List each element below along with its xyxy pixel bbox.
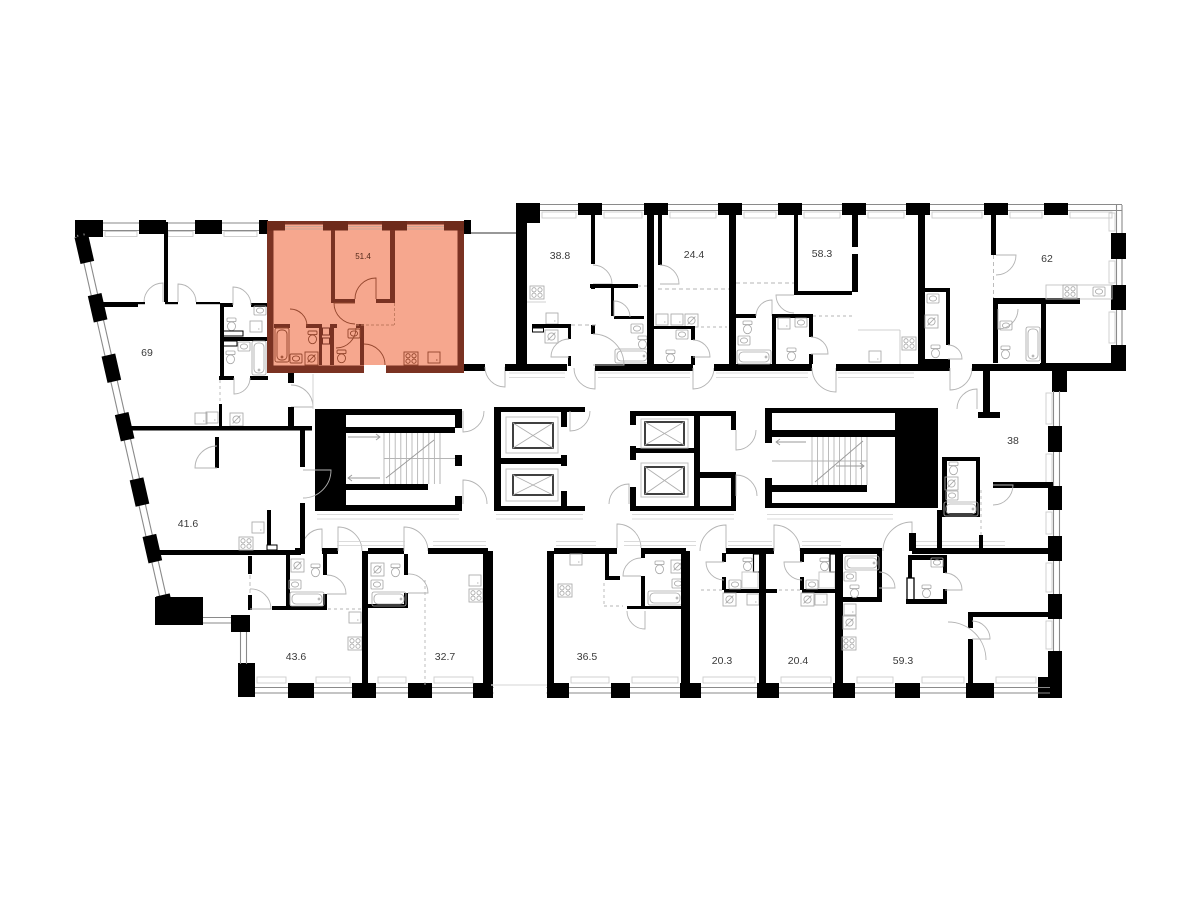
svg-text:51.4: 51.4 [355,252,371,261]
svg-text:58.3: 58.3 [812,248,833,260]
svg-text:59.3: 59.3 [893,655,914,667]
svg-text:41.6: 41.6 [178,518,199,530]
svg-text:62: 62 [1041,253,1053,265]
svg-text:38.8: 38.8 [550,250,571,262]
svg-text:38: 38 [1007,435,1019,447]
svg-text:24.4: 24.4 [684,249,705,261]
svg-text:20.4: 20.4 [788,655,809,667]
svg-text:43.6: 43.6 [286,651,307,663]
svg-text:32.7: 32.7 [435,651,456,663]
svg-text:36.5: 36.5 [577,651,598,663]
svg-text:69: 69 [141,347,153,359]
svg-text:20.3: 20.3 [712,655,733,667]
